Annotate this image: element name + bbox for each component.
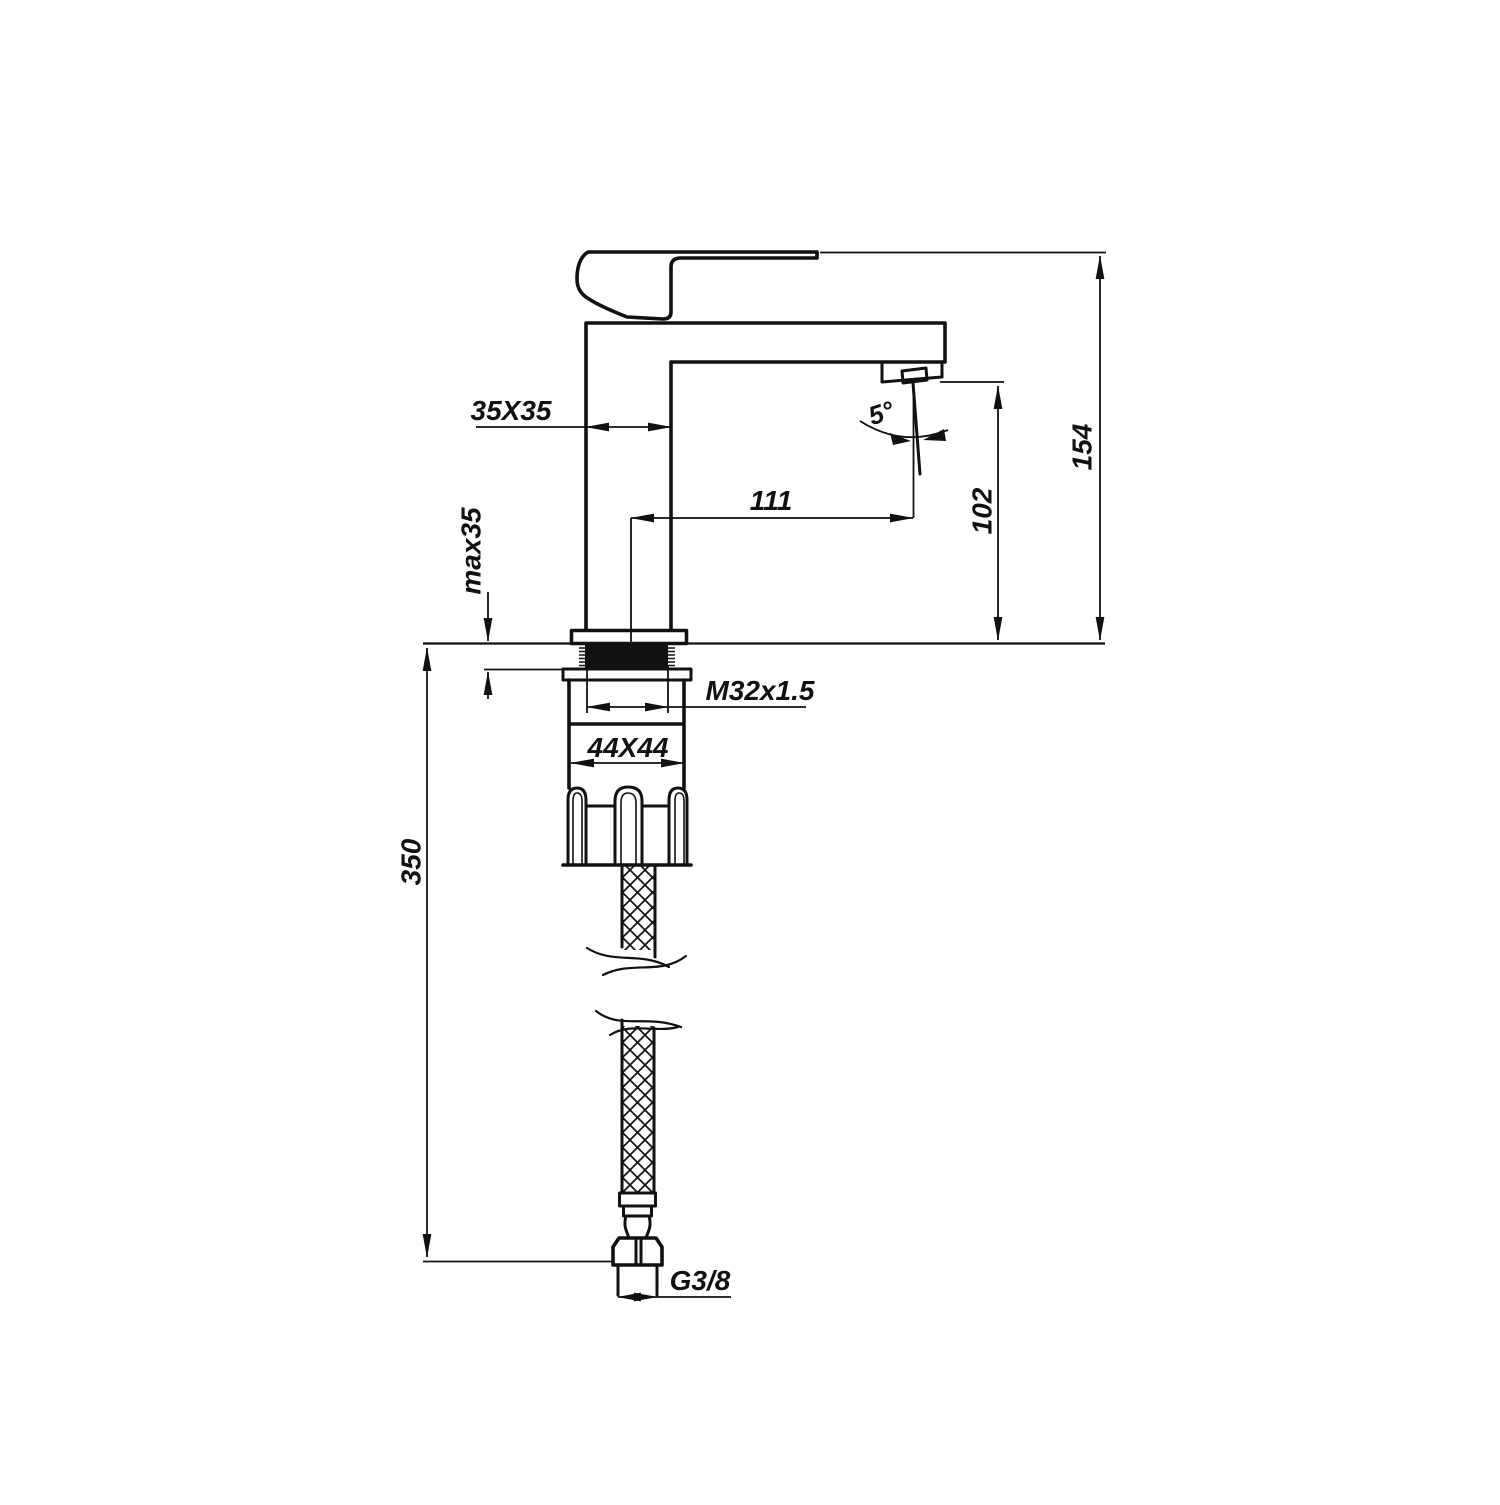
dim-g38-label: G3/8: [670, 1265, 731, 1296]
supply-hose-group: [587, 865, 686, 1193]
dimension-350: 350: [396, 648, 613, 1262]
hose-fitting-group: [613, 1193, 662, 1295]
dim-max35-label: max35: [456, 507, 487, 595]
aerator: [882, 363, 942, 382]
dimension-154: 154: [820, 253, 1106, 641]
dim-102-label: 102: [967, 487, 998, 534]
drawing-page: 35X35 max35 111 5° 102 154 M32x: [0, 0, 1500, 1500]
hose-break-upper: [587, 948, 686, 975]
angle-arc-arrow-right: [923, 429, 946, 441]
mounting-thread-shank: [585, 645, 668, 668]
angle-arc-arrow-left: [890, 433, 911, 445]
spout-body: [586, 323, 945, 631]
hose-braid-upper: [623, 866, 655, 950]
supply-nut-rib-left: [568, 788, 586, 865]
dimension-m32: M32x1.5: [587, 666, 815, 713]
technical-drawing-canvas: 35X35 max35 111 5° 102 154 M32x: [0, 0, 1500, 1500]
hose-braid-lower: [623, 1026, 654, 1193]
faucet-body-group: [577, 252, 945, 631]
fitting-ferrule: [620, 1193, 656, 1206]
supply-nut-rib-right-inner: [675, 793, 684, 865]
mounting-flange: [572, 631, 687, 644]
supply-nut-rib-center: [615, 787, 642, 865]
dimension-111: 111: [631, 485, 913, 644]
dim-m32-label: M32x1.5: [706, 675, 815, 706]
dim-111-label: 111: [750, 485, 793, 516]
dimension-g38: G3/8: [618, 1265, 731, 1297]
dimension-max35: max35: [456, 507, 567, 699]
fitting-taper: [624, 1216, 651, 1238]
dimension-44x44: 44X44: [571, 732, 684, 763]
lever-handle: [577, 252, 817, 319]
backing-washer: [563, 669, 691, 680]
fitting-thread-stub: [618, 1265, 657, 1295]
dim-44x44-label: 44X44: [587, 732, 669, 763]
dim-154-label: 154: [1067, 423, 1098, 470]
supply-nut-rib-center-inner: [621, 793, 636, 865]
dim-35x35-label: 35X35: [471, 395, 552, 426]
dim-m32-extensions: [587, 666, 668, 713]
dimension-angle-5deg: 5°: [860, 383, 948, 518]
dimension-102: 102: [940, 382, 1004, 640]
supply-nut-rib-left-inner: [573, 793, 582, 865]
dim-350-label: 350: [396, 838, 427, 885]
dimension-35x35: 35X35: [471, 395, 671, 427]
